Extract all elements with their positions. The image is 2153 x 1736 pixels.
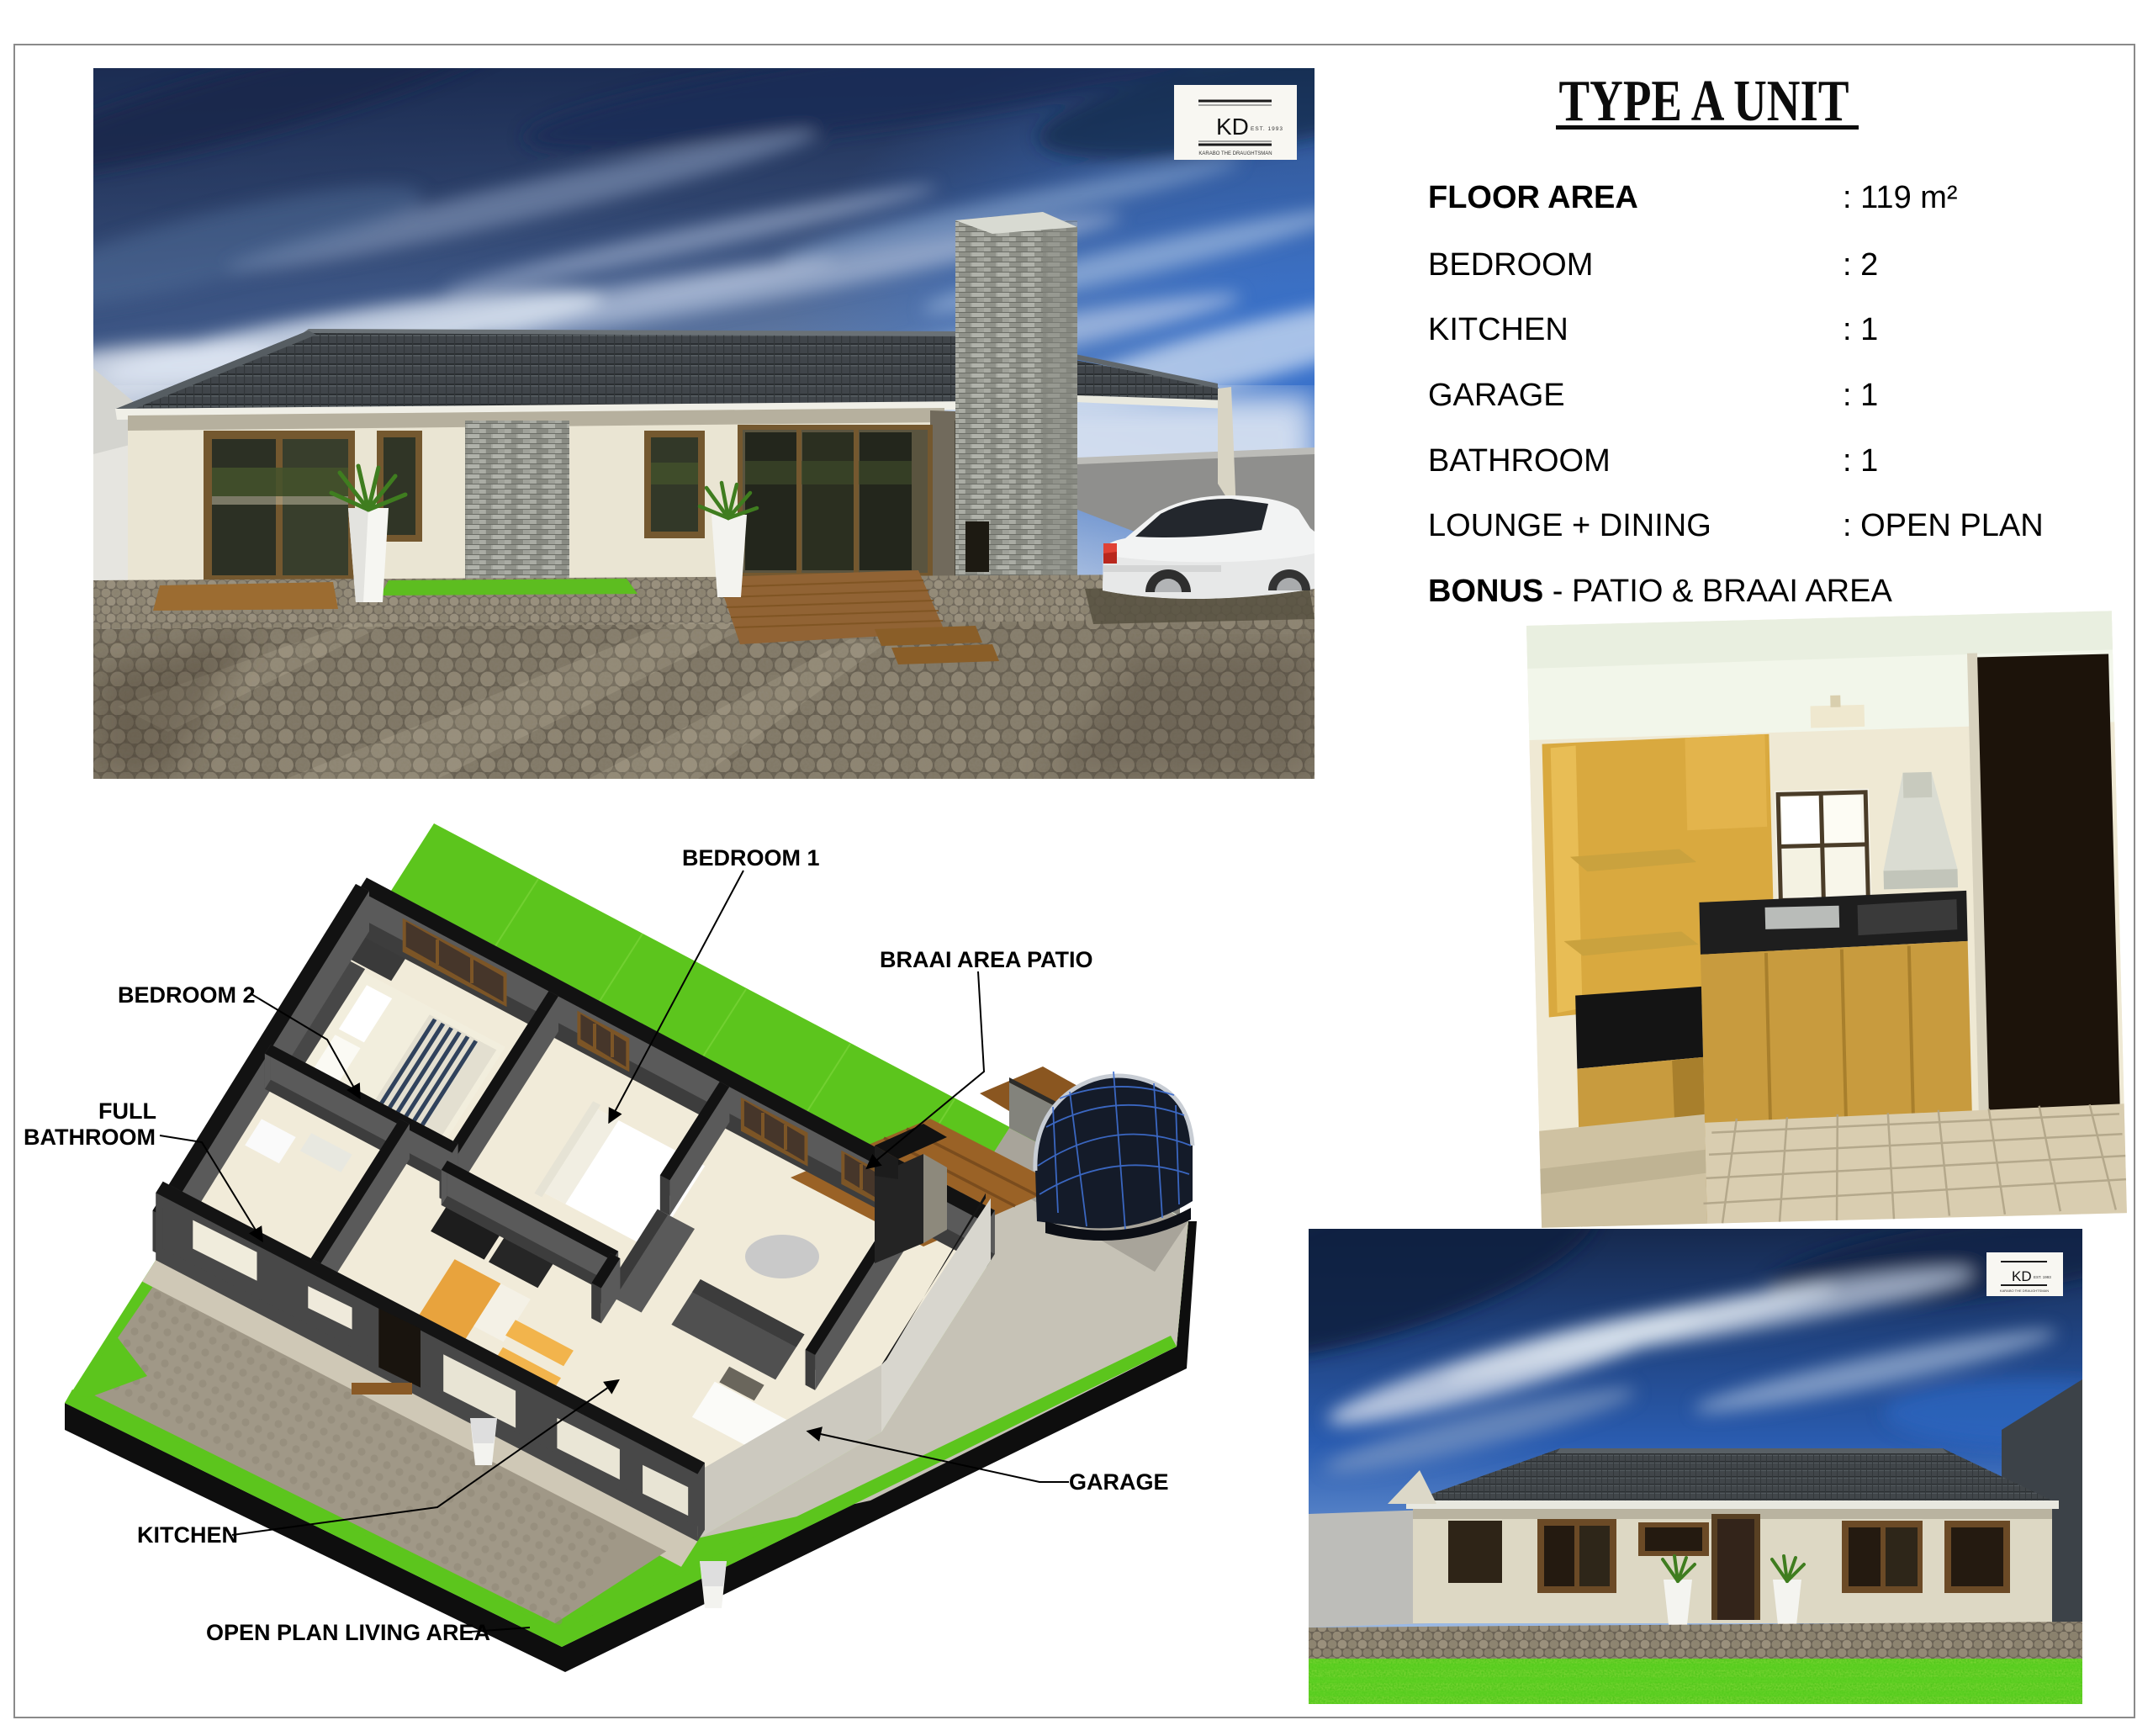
svg-text:BRAAI AREA PATIO: BRAAI AREA PATIO	[880, 947, 1093, 972]
svg-text:KITCHEN: KITCHEN	[137, 1522, 238, 1548]
svg-text:KARABO THE DRAUGHTSMAN: KARABO THE DRAUGHTSMAN	[2000, 1289, 2049, 1293]
svg-text:BEDROOM 1: BEDROOM 1	[682, 845, 820, 871]
svg-text:GARAGE: GARAGE	[1069, 1469, 1169, 1495]
svg-text:KD: KD	[1216, 114, 1249, 140]
svg-text:KD: KD	[2012, 1268, 2032, 1284]
svg-text:OPEN PLAN LIVING AREA: OPEN PLAN LIVING AREA	[206, 1620, 490, 1645]
svg-text:EST. 1993: EST. 1993	[2034, 1275, 2051, 1279]
svg-text:BEDROOM 2: BEDROOM 2	[118, 982, 256, 1008]
svg-text:TYPE A UNIT: TYPE A UNIT	[1559, 69, 1849, 134]
svg-text:EST. 1993: EST. 1993	[1251, 126, 1283, 132]
svg-text:KARABO THE DRAUGHTSMAN: KARABO THE DRAUGHTSMAN	[1198, 151, 1272, 156]
svg-text:FULL: FULL	[98, 1098, 156, 1124]
svg-text:BATHROOM: BATHROOM	[24, 1125, 156, 1150]
